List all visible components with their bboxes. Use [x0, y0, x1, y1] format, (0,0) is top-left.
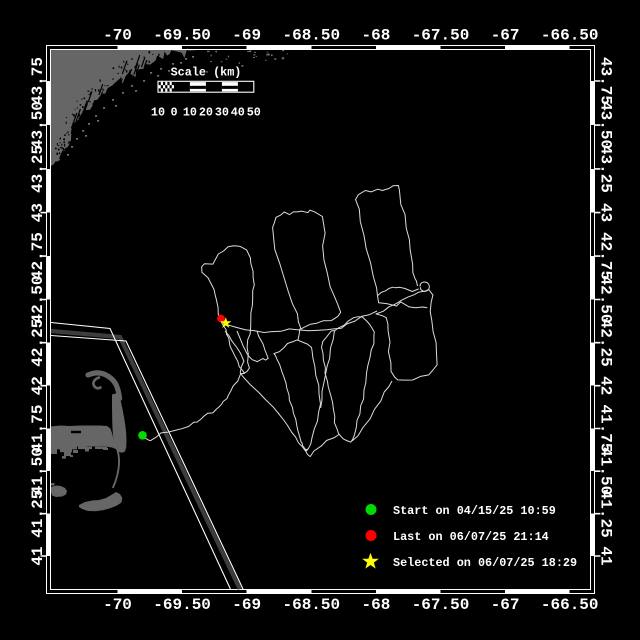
svg-text:-69: -69: [232, 27, 261, 45]
svg-text:41.25: 41.25: [597, 490, 615, 538]
svg-text:Selected on 06/07/25 18:29: Selected on 06/07/25 18:29: [393, 556, 577, 570]
svg-text:41: 41: [597, 546, 615, 565]
svg-text:-69: -69: [232, 596, 261, 614]
svg-text:-66.50: -66.50: [541, 27, 599, 45]
svg-text:-66.50: -66.50: [541, 596, 599, 614]
svg-text:43: 43: [597, 203, 615, 222]
svg-text:-68.50: -68.50: [282, 27, 340, 45]
svg-text:-69.50: -69.50: [153, 596, 211, 614]
svg-text:-68: -68: [361, 27, 390, 45]
svg-text:42.25: 42.25: [29, 319, 47, 367]
svg-text:41.50: 41.50: [597, 447, 615, 495]
svg-text:Last on 06/07/25 21:14: Last on 06/07/25 21:14: [393, 530, 549, 544]
svg-text:-70: -70: [103, 596, 132, 614]
svg-text:40: 40: [231, 106, 245, 120]
svg-text:43.75: 43.75: [597, 57, 615, 105]
svg-text:43: 43: [29, 203, 47, 222]
svg-text:42.50: 42.50: [597, 275, 615, 323]
svg-text:-68: -68: [361, 596, 390, 614]
svg-text:10: 10: [151, 106, 165, 120]
svg-text:42.75: 42.75: [29, 232, 47, 280]
svg-text:-67.50: -67.50: [412, 596, 470, 614]
svg-text:-67: -67: [491, 27, 520, 45]
svg-text:50: 50: [247, 106, 261, 120]
svg-text:0: 0: [170, 106, 177, 120]
svg-text:-67: -67: [491, 596, 520, 614]
svg-text:42.50: 42.50: [29, 275, 47, 323]
svg-text:-68.50: -68.50: [282, 596, 340, 614]
svg-text:41.25: 41.25: [29, 490, 47, 538]
svg-text:41.50: 41.50: [29, 447, 47, 495]
svg-text:Scale (km): Scale (km): [171, 66, 242, 80]
svg-text:42: 42: [597, 376, 615, 395]
svg-text:43.75: 43.75: [29, 57, 47, 105]
svg-text:42.25: 42.25: [597, 319, 615, 367]
svg-text:43.25: 43.25: [29, 145, 47, 193]
svg-text:41: 41: [29, 546, 47, 565]
svg-text:43.25: 43.25: [597, 145, 615, 193]
svg-text:43.50: 43.50: [29, 101, 47, 149]
svg-text:43.50: 43.50: [597, 101, 615, 149]
svg-text:Start on 04/15/25 10:59: Start on 04/15/25 10:59: [393, 504, 556, 518]
svg-text:-69.50: -69.50: [153, 27, 211, 45]
svg-text:41.75: 41.75: [597, 404, 615, 452]
svg-text:42.75: 42.75: [597, 232, 615, 280]
svg-text:42: 42: [29, 376, 47, 395]
svg-text:41.75: 41.75: [29, 404, 47, 452]
svg-text:30: 30: [215, 106, 229, 120]
svg-text:20: 20: [199, 106, 213, 120]
svg-text:-67.50: -67.50: [412, 27, 470, 45]
svg-text:10: 10: [183, 106, 197, 120]
svg-text:-70: -70: [103, 27, 132, 45]
